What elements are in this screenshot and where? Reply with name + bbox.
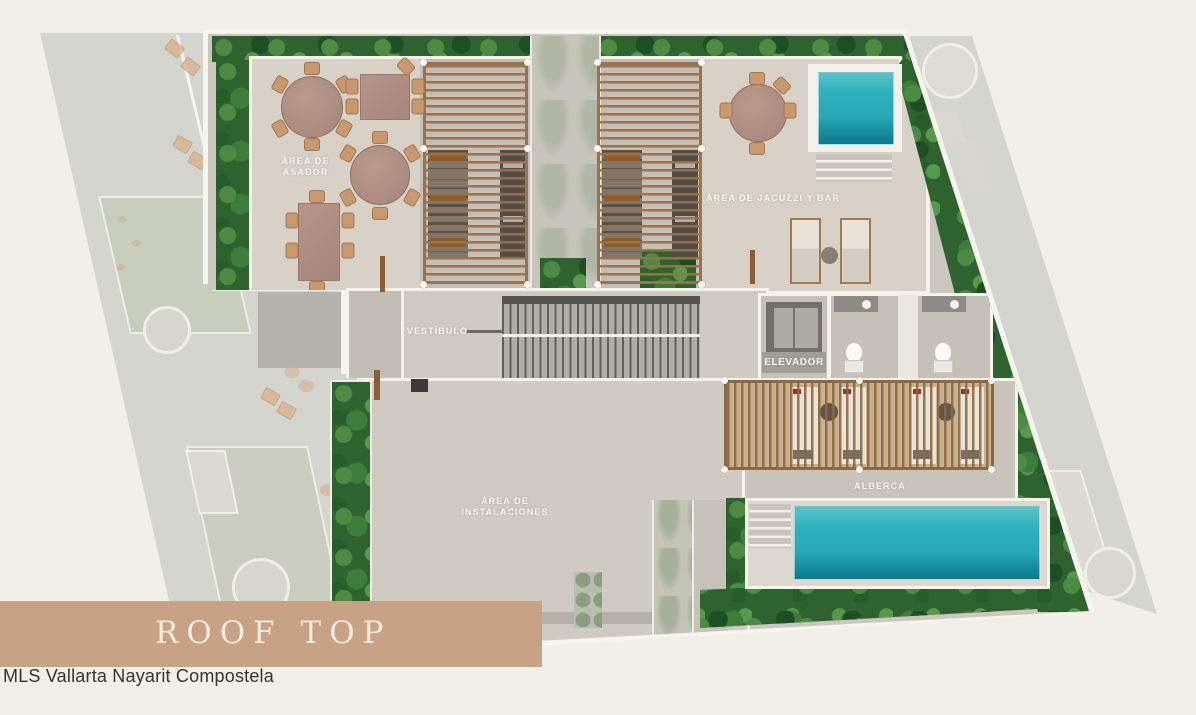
bathroom-counter [834, 296, 878, 312]
pergola-3 [724, 380, 994, 470]
planter-dot [116, 264, 125, 271]
alberca-label: ALBERCA [830, 481, 930, 492]
chair [304, 138, 320, 151]
pergola-post [420, 145, 427, 152]
pool-steps [749, 504, 791, 548]
chair [286, 213, 299, 229]
dining-table-round [350, 145, 410, 205]
pergola-post [420, 59, 427, 66]
lounge-chair [276, 401, 297, 421]
swimming-pool [794, 506, 1040, 580]
bar-counter [380, 256, 385, 292]
chair [412, 99, 425, 115]
hedge-pool-left [726, 498, 746, 590]
rooftop-banner: ROOF TOP [0, 601, 542, 667]
chair [749, 72, 765, 85]
elevator-car-icon [772, 308, 820, 348]
jacuzzi-pool [818, 72, 894, 145]
entry-corridor [530, 36, 601, 291]
umbrella-dot [298, 380, 314, 392]
toilet-tank [844, 360, 864, 373]
elevador-label: ELEVADOR [762, 357, 826, 368]
jacuzzi-steps [816, 154, 892, 182]
service-lane-planted [652, 500, 692, 645]
wall-segment [374, 370, 380, 400]
sun-lounger [790, 218, 821, 284]
pergola-post [698, 281, 705, 288]
sink-icon [950, 300, 959, 309]
elevator-room-wall [827, 295, 831, 379]
chair [309, 190, 325, 203]
pergola-post [988, 377, 995, 384]
chair [342, 213, 355, 229]
planter-dot [132, 240, 141, 247]
dining-table-round [281, 76, 343, 138]
instalaciones-label: ÁREA DE INSTALACIONES [440, 496, 570, 518]
chair [346, 79, 359, 95]
chair [304, 62, 320, 75]
stair-landing-line [502, 334, 700, 337]
spa-tub-upper [143, 306, 191, 354]
chair [749, 142, 765, 155]
duct-square [411, 379, 428, 392]
bathroom-wall [898, 295, 918, 379]
sink-icon [862, 300, 871, 309]
hedge-instalaciones-left [330, 380, 372, 618]
pergola-post [524, 281, 531, 288]
umbrella-dot [284, 366, 300, 378]
pergola-post [524, 59, 531, 66]
pergola-post [420, 281, 427, 288]
sun-lounger [840, 218, 871, 284]
chair [412, 79, 425, 95]
jacuzzi-bar-label: ÁREA DE JACUZZI Y BAR [702, 193, 844, 204]
pergola-1 [423, 62, 528, 284]
elevator-door-line [793, 308, 795, 348]
small-green-patch [574, 572, 602, 628]
side-table-icon [821, 247, 838, 264]
pergola-post [721, 466, 728, 473]
floorplan-stage: ELEVADOR [0, 0, 1196, 715]
spa-tub-bottom [1084, 547, 1136, 599]
chair [342, 243, 355, 259]
chair [372, 131, 388, 144]
pergola-post [594, 281, 601, 288]
chair [286, 243, 299, 259]
spa-tub-top [922, 43, 978, 99]
planter-box [951, 142, 993, 190]
lounge-chair [260, 387, 281, 407]
dining-table-long [298, 203, 340, 281]
planter-dot [118, 216, 127, 223]
rooftop-banner-title: ROOF TOP [0, 601, 542, 665]
pergola-post [721, 377, 728, 384]
chair [372, 207, 388, 220]
jacuzzi-table [729, 84, 787, 142]
vestibulo-label: VESTÍBULO [395, 326, 480, 337]
pergola-post [594, 59, 601, 66]
pergola-post [698, 145, 705, 152]
staircase [502, 296, 700, 382]
pergola-post [698, 59, 705, 66]
watermark-text: MLS Vallarta Nayarit Compostela [3, 666, 274, 687]
area-asador-label: ÁREA DE ASADOR [258, 156, 353, 178]
pergola-post [988, 466, 995, 473]
bathroom-counter [922, 296, 966, 312]
chair [720, 103, 733, 119]
pergola-2 [597, 62, 702, 284]
lounge-chair [172, 135, 193, 155]
pergola-post [594, 145, 601, 152]
dining-table-square [360, 74, 410, 120]
chair [346, 99, 359, 115]
pergola-post [856, 466, 863, 473]
pergola-post [856, 377, 863, 384]
hedge-corridor-end [540, 258, 586, 292]
toilet-tank [933, 360, 953, 373]
chair [784, 103, 797, 119]
bar-counter [750, 250, 755, 284]
pergola-post [524, 145, 531, 152]
